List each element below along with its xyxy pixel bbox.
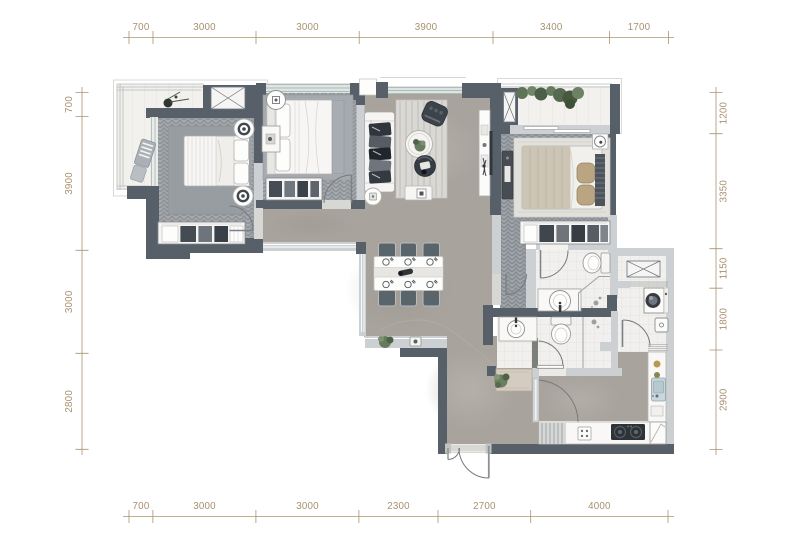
svg-text:1700: 1700 [628,22,651,33]
svg-text:700: 700 [64,96,75,113]
svg-text:3000: 3000 [296,22,319,33]
svg-text:3900: 3900 [64,172,75,195]
svg-text:2300: 2300 [387,501,410,512]
svg-text:4000: 4000 [588,501,611,512]
svg-text:1150: 1150 [719,257,730,279]
svg-text:3000: 3000 [193,501,216,512]
svg-text:700: 700 [133,501,150,512]
svg-text:2700: 2700 [473,501,496,512]
svg-text:3400: 3400 [540,22,563,33]
svg-text:3350: 3350 [719,180,730,203]
svg-text:2900: 2900 [719,388,730,411]
svg-text:3000: 3000 [64,290,75,313]
svg-text:1200: 1200 [719,101,730,124]
svg-text:1800: 1800 [719,307,730,330]
svg-text:3000: 3000 [296,501,319,512]
svg-text:3900: 3900 [415,22,438,33]
svg-text:700: 700 [133,22,150,33]
svg-text:2800: 2800 [64,390,75,413]
svg-text:3000: 3000 [193,22,216,33]
